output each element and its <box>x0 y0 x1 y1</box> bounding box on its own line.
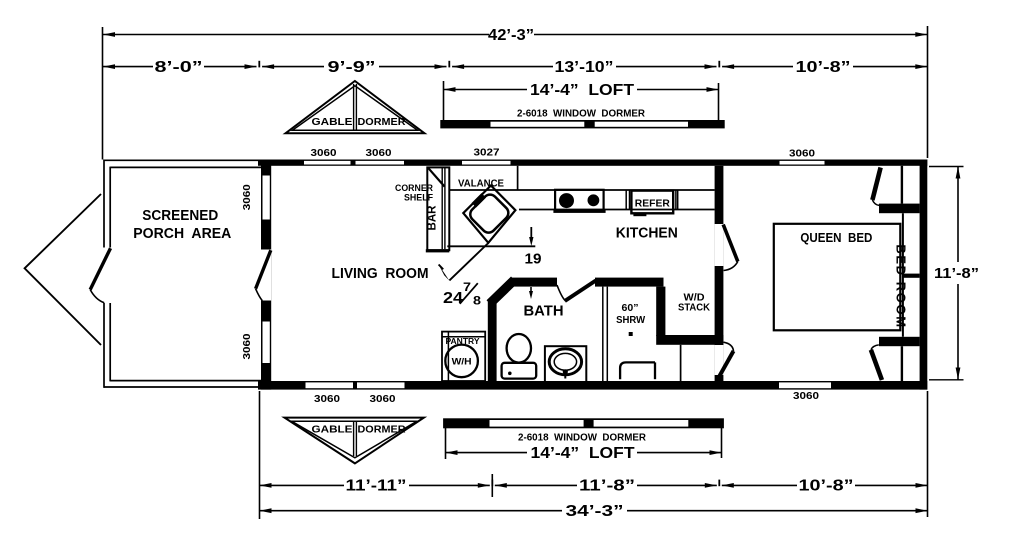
svg-text:3060: 3060 <box>314 393 340 405</box>
svg-text:3060: 3060 <box>793 390 819 402</box>
svg-text:DORMER: DORMER <box>358 423 406 435</box>
svg-text:13’-10”: 13’-10” <box>555 59 614 76</box>
svg-text:SHRW: SHRW <box>616 315 646 326</box>
svg-text:11’-11”: 11’-11” <box>346 478 407 495</box>
svg-text:PANTRY: PANTRY <box>446 337 481 346</box>
svg-text:BATH: BATH <box>524 302 564 319</box>
svg-text:3060: 3060 <box>311 147 337 159</box>
svg-text:LIVING ROOM: LIVING ROOM <box>332 266 429 282</box>
svg-text:2-6018 WINDOW DORMER: 2-6018 WINDOW DORMER <box>518 432 647 443</box>
svg-text:W/H: W/H <box>452 357 472 368</box>
svg-text:DORMER: DORMER <box>358 116 406 128</box>
svg-text:QUEEN BED: QUEEN BED <box>800 231 872 245</box>
svg-text:3060: 3060 <box>370 393 396 405</box>
svg-text:STACK: STACK <box>678 303 711 314</box>
svg-text:8’-0”: 8’-0” <box>155 59 203 76</box>
svg-text:BED ROOM: BED ROOM <box>894 244 909 328</box>
svg-text:10’-8”: 10’-8” <box>799 478 854 495</box>
svg-text:14’-4” LOFT: 14’-4” LOFT <box>530 82 634 99</box>
svg-text:3027: 3027 <box>474 147 500 159</box>
svg-text:24: 24 <box>443 290 463 307</box>
svg-text:14’-4” LOFT: 14’-4” LOFT <box>531 445 635 462</box>
svg-text:42’-3”: 42’-3” <box>488 27 534 44</box>
svg-text:GABLE: GABLE <box>312 116 353 128</box>
svg-text:3060: 3060 <box>241 184 253 210</box>
svg-text:VALANCE: VALANCE <box>458 178 504 189</box>
svg-text:8: 8 <box>473 294 481 308</box>
svg-text:3060: 3060 <box>366 147 392 159</box>
svg-text:GABLE: GABLE <box>312 423 353 435</box>
svg-text:KITCHEN: KITCHEN <box>616 226 678 242</box>
svg-text:9’-9”: 9’-9” <box>328 59 376 76</box>
svg-text:SCREENED: SCREENED <box>142 208 218 224</box>
svg-text:60”: 60” <box>622 303 639 314</box>
svg-text:PORCH AREA: PORCH AREA <box>133 226 231 242</box>
svg-text:11’-8”: 11’-8” <box>934 265 979 282</box>
svg-text:34’-3”: 34’-3” <box>566 503 624 520</box>
svg-text:19: 19 <box>525 251 542 268</box>
svg-text:BAR: BAR <box>427 205 439 231</box>
svg-text:REFER: REFER <box>635 198 671 209</box>
svg-text:SHELF: SHELF <box>404 192 433 203</box>
svg-text:3060: 3060 <box>241 333 253 359</box>
svg-text:11’-8”: 11’-8” <box>579 478 635 495</box>
svg-text:3060: 3060 <box>789 148 815 160</box>
svg-text:10’-8”: 10’-8” <box>796 59 851 76</box>
svg-text:2-6018 WINDOW DORMER: 2-6018 WINDOW DORMER <box>517 109 646 120</box>
